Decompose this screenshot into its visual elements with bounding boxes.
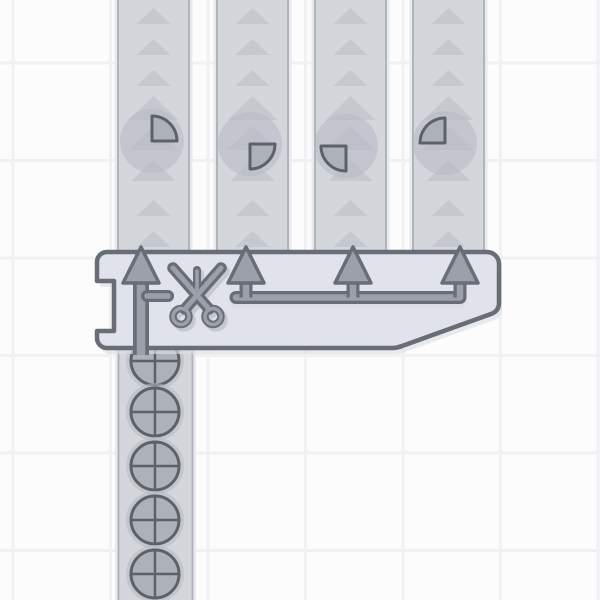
conveyor-belt-2[interactable]	[214, 0, 292, 252]
game-canvas[interactable]	[0, 0, 600, 600]
shape-item-circle-quartered	[131, 388, 179, 436]
conveyor-belt-3[interactable]	[312, 0, 390, 252]
shape-item-circle-quartered	[131, 442, 179, 490]
conveyor-belt-1[interactable]	[115, 0, 193, 252]
game-viewport	[0, 0, 600, 600]
shape-item-circle-quartered	[131, 550, 179, 598]
shape-item-circle-quartered	[131, 496, 179, 544]
input-conveyor-lane[interactable]	[115, 332, 196, 600]
machine-quad-cutter[interactable]	[97, 247, 502, 355]
conveyor-belt-4[interactable]	[410, 0, 488, 252]
